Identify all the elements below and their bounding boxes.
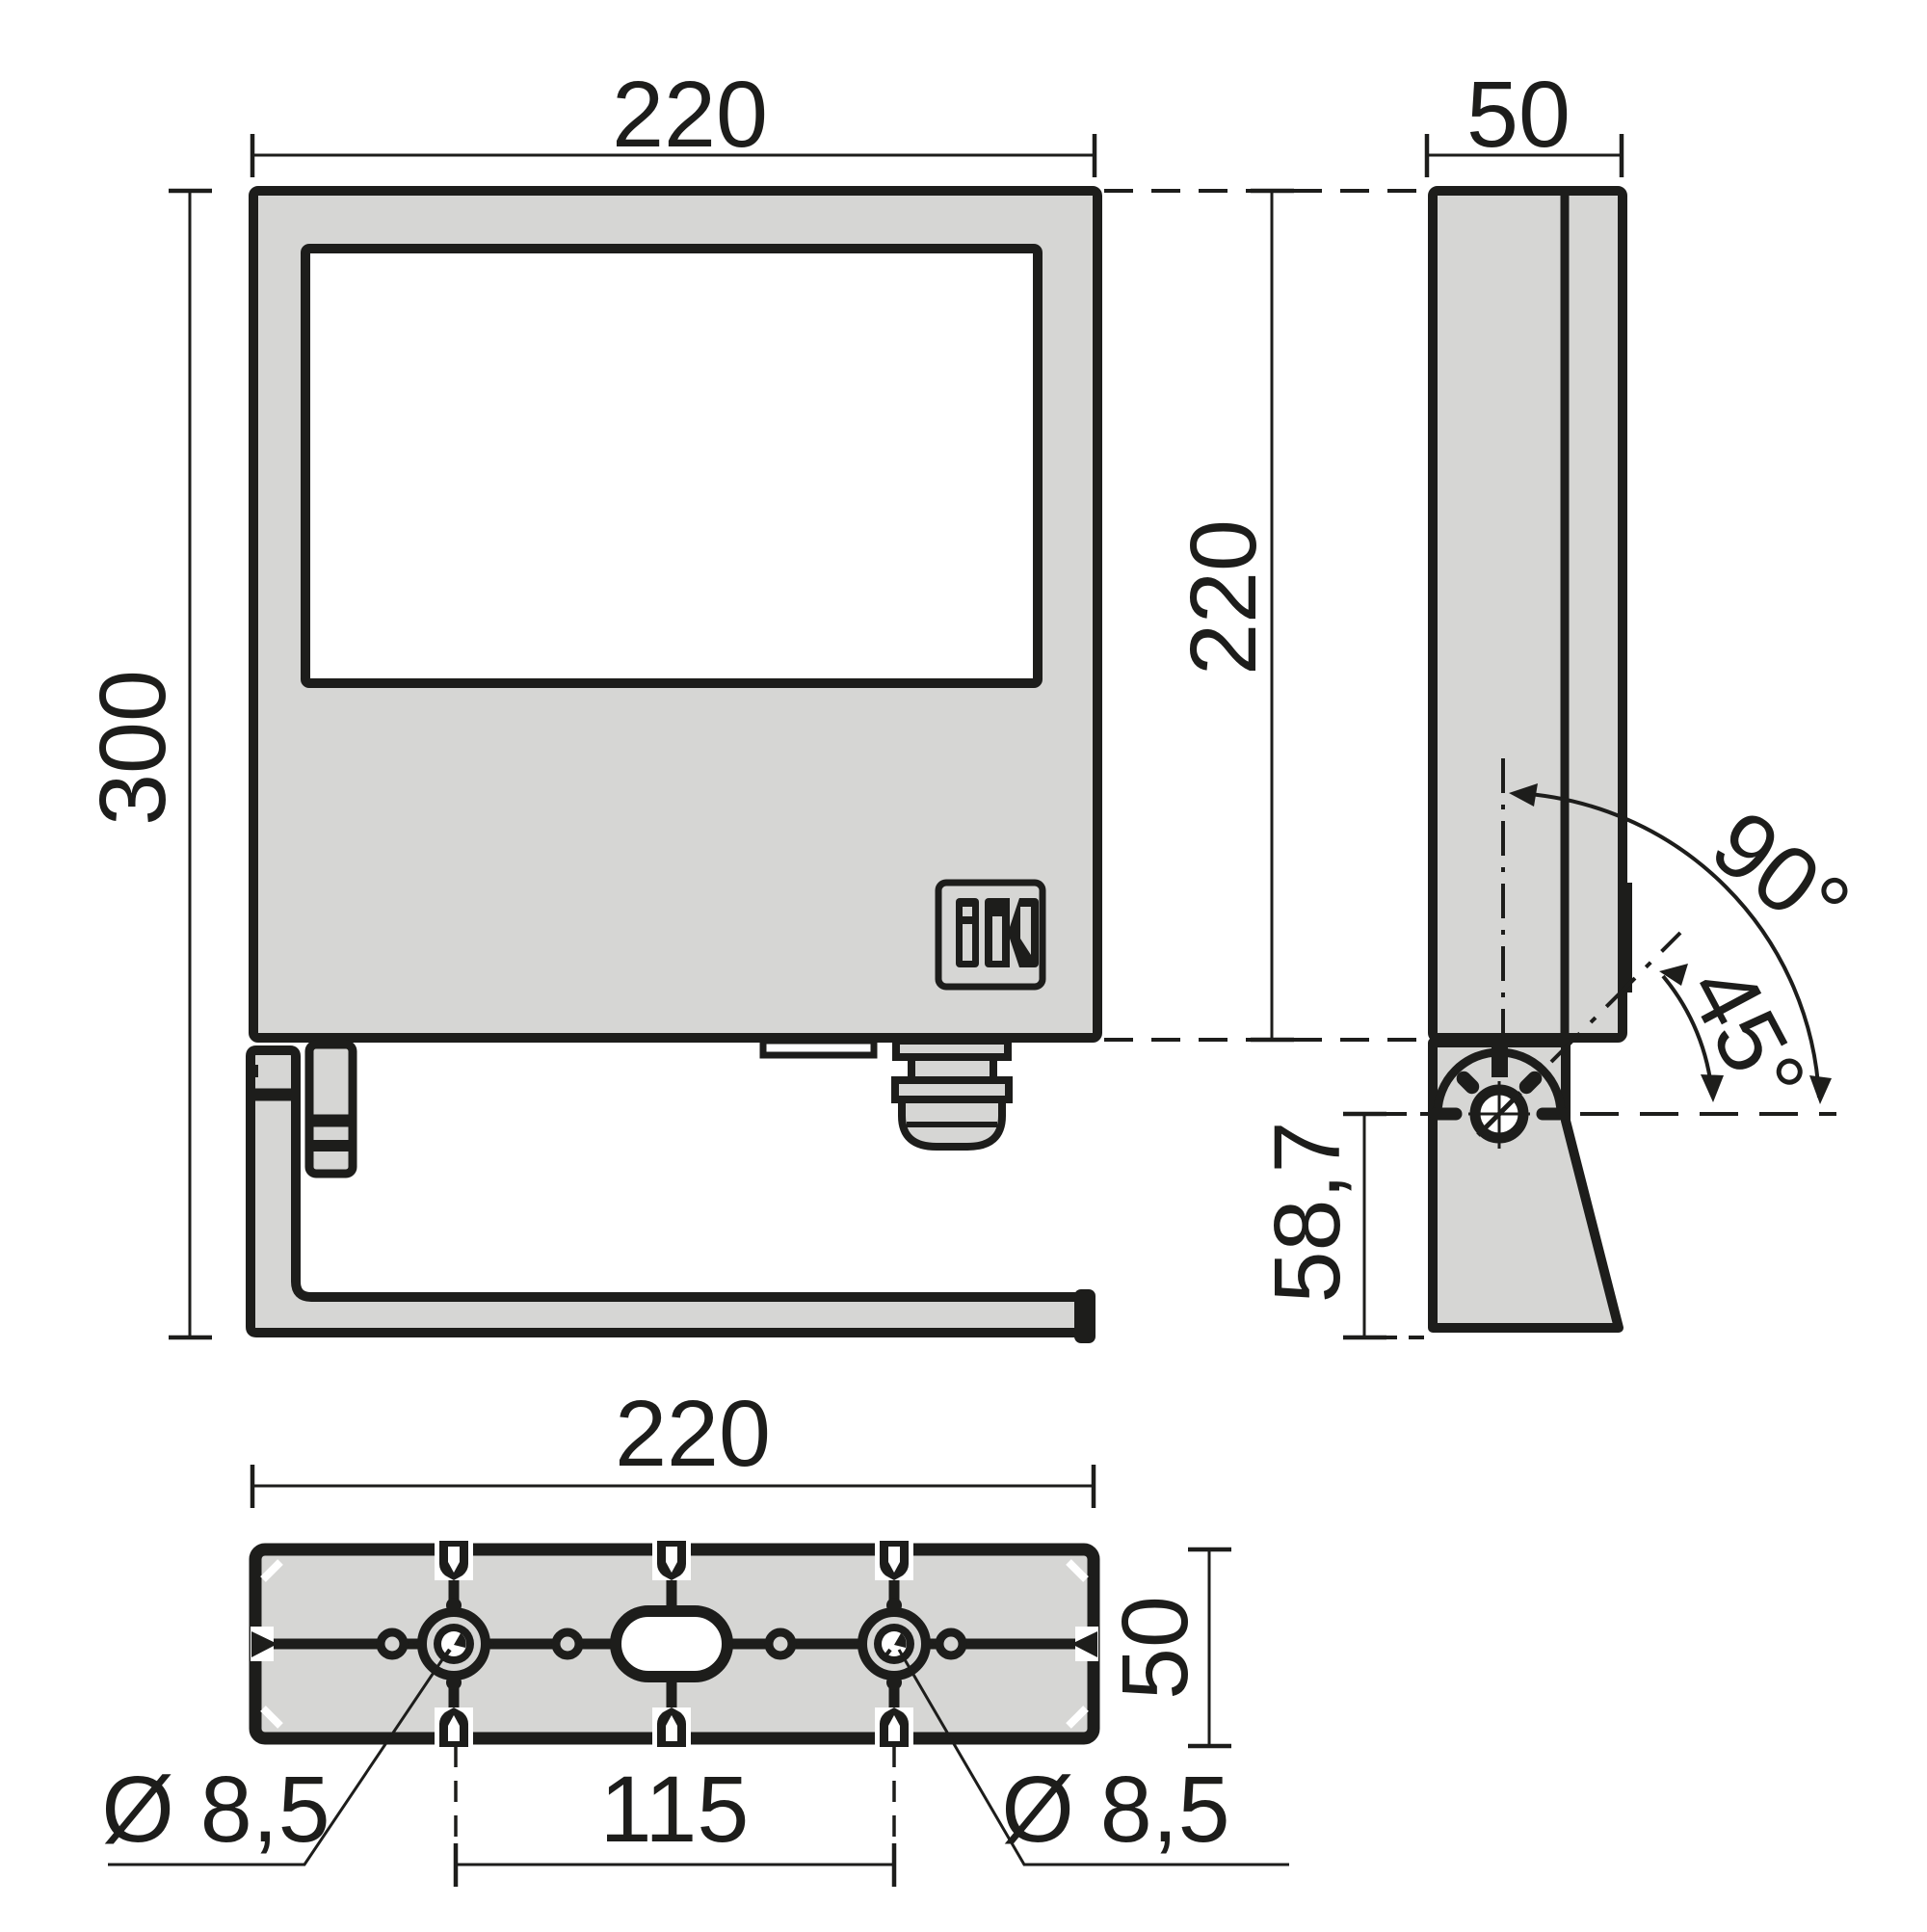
svg-text:115: 115 [600,1757,750,1862]
svg-text:58,7: 58,7 [1254,1122,1359,1304]
svg-text:220: 220 [612,62,768,167]
svg-text:300: 300 [80,670,185,826]
svg-text:Ø 8,5: Ø 8,5 [101,1757,330,1862]
svg-text:50: 50 [1102,1596,1207,1700]
svg-text:50: 50 [1466,62,1571,167]
svg-text:Ø 8,5: Ø 8,5 [1001,1757,1229,1862]
svg-text:220: 220 [1171,519,1276,675]
svg-text:220: 220 [615,1381,771,1486]
